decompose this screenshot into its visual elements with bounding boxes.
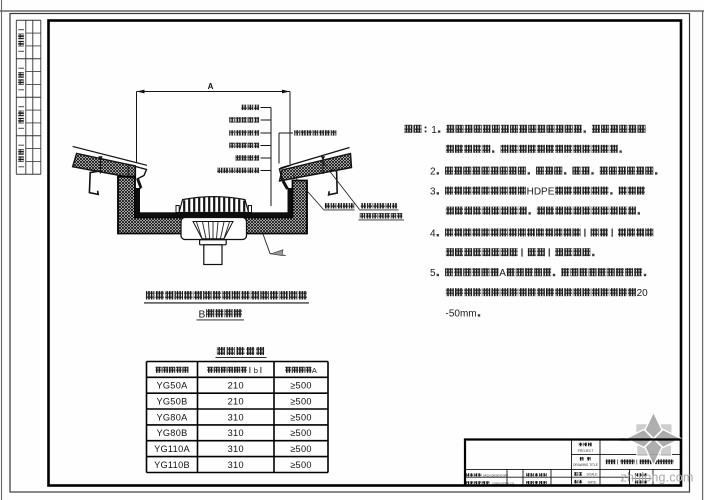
svg-text:1: 1 — [431, 125, 437, 136]
svg-text:≥500: ≥500 — [290, 381, 312, 391]
svg-text:≥500: ≥500 — [290, 412, 312, 422]
svg-text:PROJECT: PROJECT — [578, 449, 594, 453]
svg-text:≥500: ≥500 — [290, 444, 312, 454]
svg-text:210: 210 — [228, 396, 244, 406]
svg-text:ARCH DESIGN GRP: ARCH DESIGN GRP — [483, 473, 508, 477]
svg-text:YG50A: YG50A — [156, 381, 188, 391]
svg-text:20: 20 — [637, 288, 649, 299]
svg-text:310: 310 — [228, 412, 244, 422]
svg-text:zhulong.com: zhulong.com — [621, 471, 694, 485]
svg-text:310: 310 — [228, 444, 244, 454]
svg-text:5: 5 — [430, 268, 436, 279]
svg-text:310: 310 — [228, 428, 244, 438]
svg-text:YG80B: YG80B — [156, 428, 187, 438]
svg-text:4: 4 — [430, 228, 436, 239]
svg-text:YG50B: YG50B — [156, 396, 187, 406]
svg-text:A: A — [208, 82, 214, 91]
svg-text:B: B — [199, 309, 206, 320]
svg-text:2: 2 — [430, 167, 436, 178]
svg-text:CONSULTING CO: CONSULTING CO — [492, 481, 514, 485]
svg-text:3: 3 — [430, 187, 436, 198]
svg-text:SCALE: SCALE — [586, 473, 598, 477]
svg-text:YG110B: YG110B — [154, 460, 190, 470]
svg-text:b: b — [254, 366, 258, 375]
svg-text:-50mm: -50mm — [446, 309, 477, 320]
svg-text:YG80A: YG80A — [156, 412, 188, 422]
svg-text:310: 310 — [228, 460, 244, 470]
svg-text:≥500: ≥500 — [290, 428, 312, 438]
svg-text:DATE: DATE — [588, 480, 598, 484]
svg-text:210: 210 — [228, 381, 244, 391]
svg-text:A: A — [499, 268, 506, 279]
svg-text:≥500: ≥500 — [290, 396, 312, 406]
svg-text:HDPE: HDPE — [527, 187, 555, 198]
svg-text:≥500: ≥500 — [290, 460, 312, 470]
svg-text:YG110A: YG110A — [154, 444, 190, 454]
svg-text:DRAWING TITLE: DRAWING TITLE — [573, 463, 598, 467]
